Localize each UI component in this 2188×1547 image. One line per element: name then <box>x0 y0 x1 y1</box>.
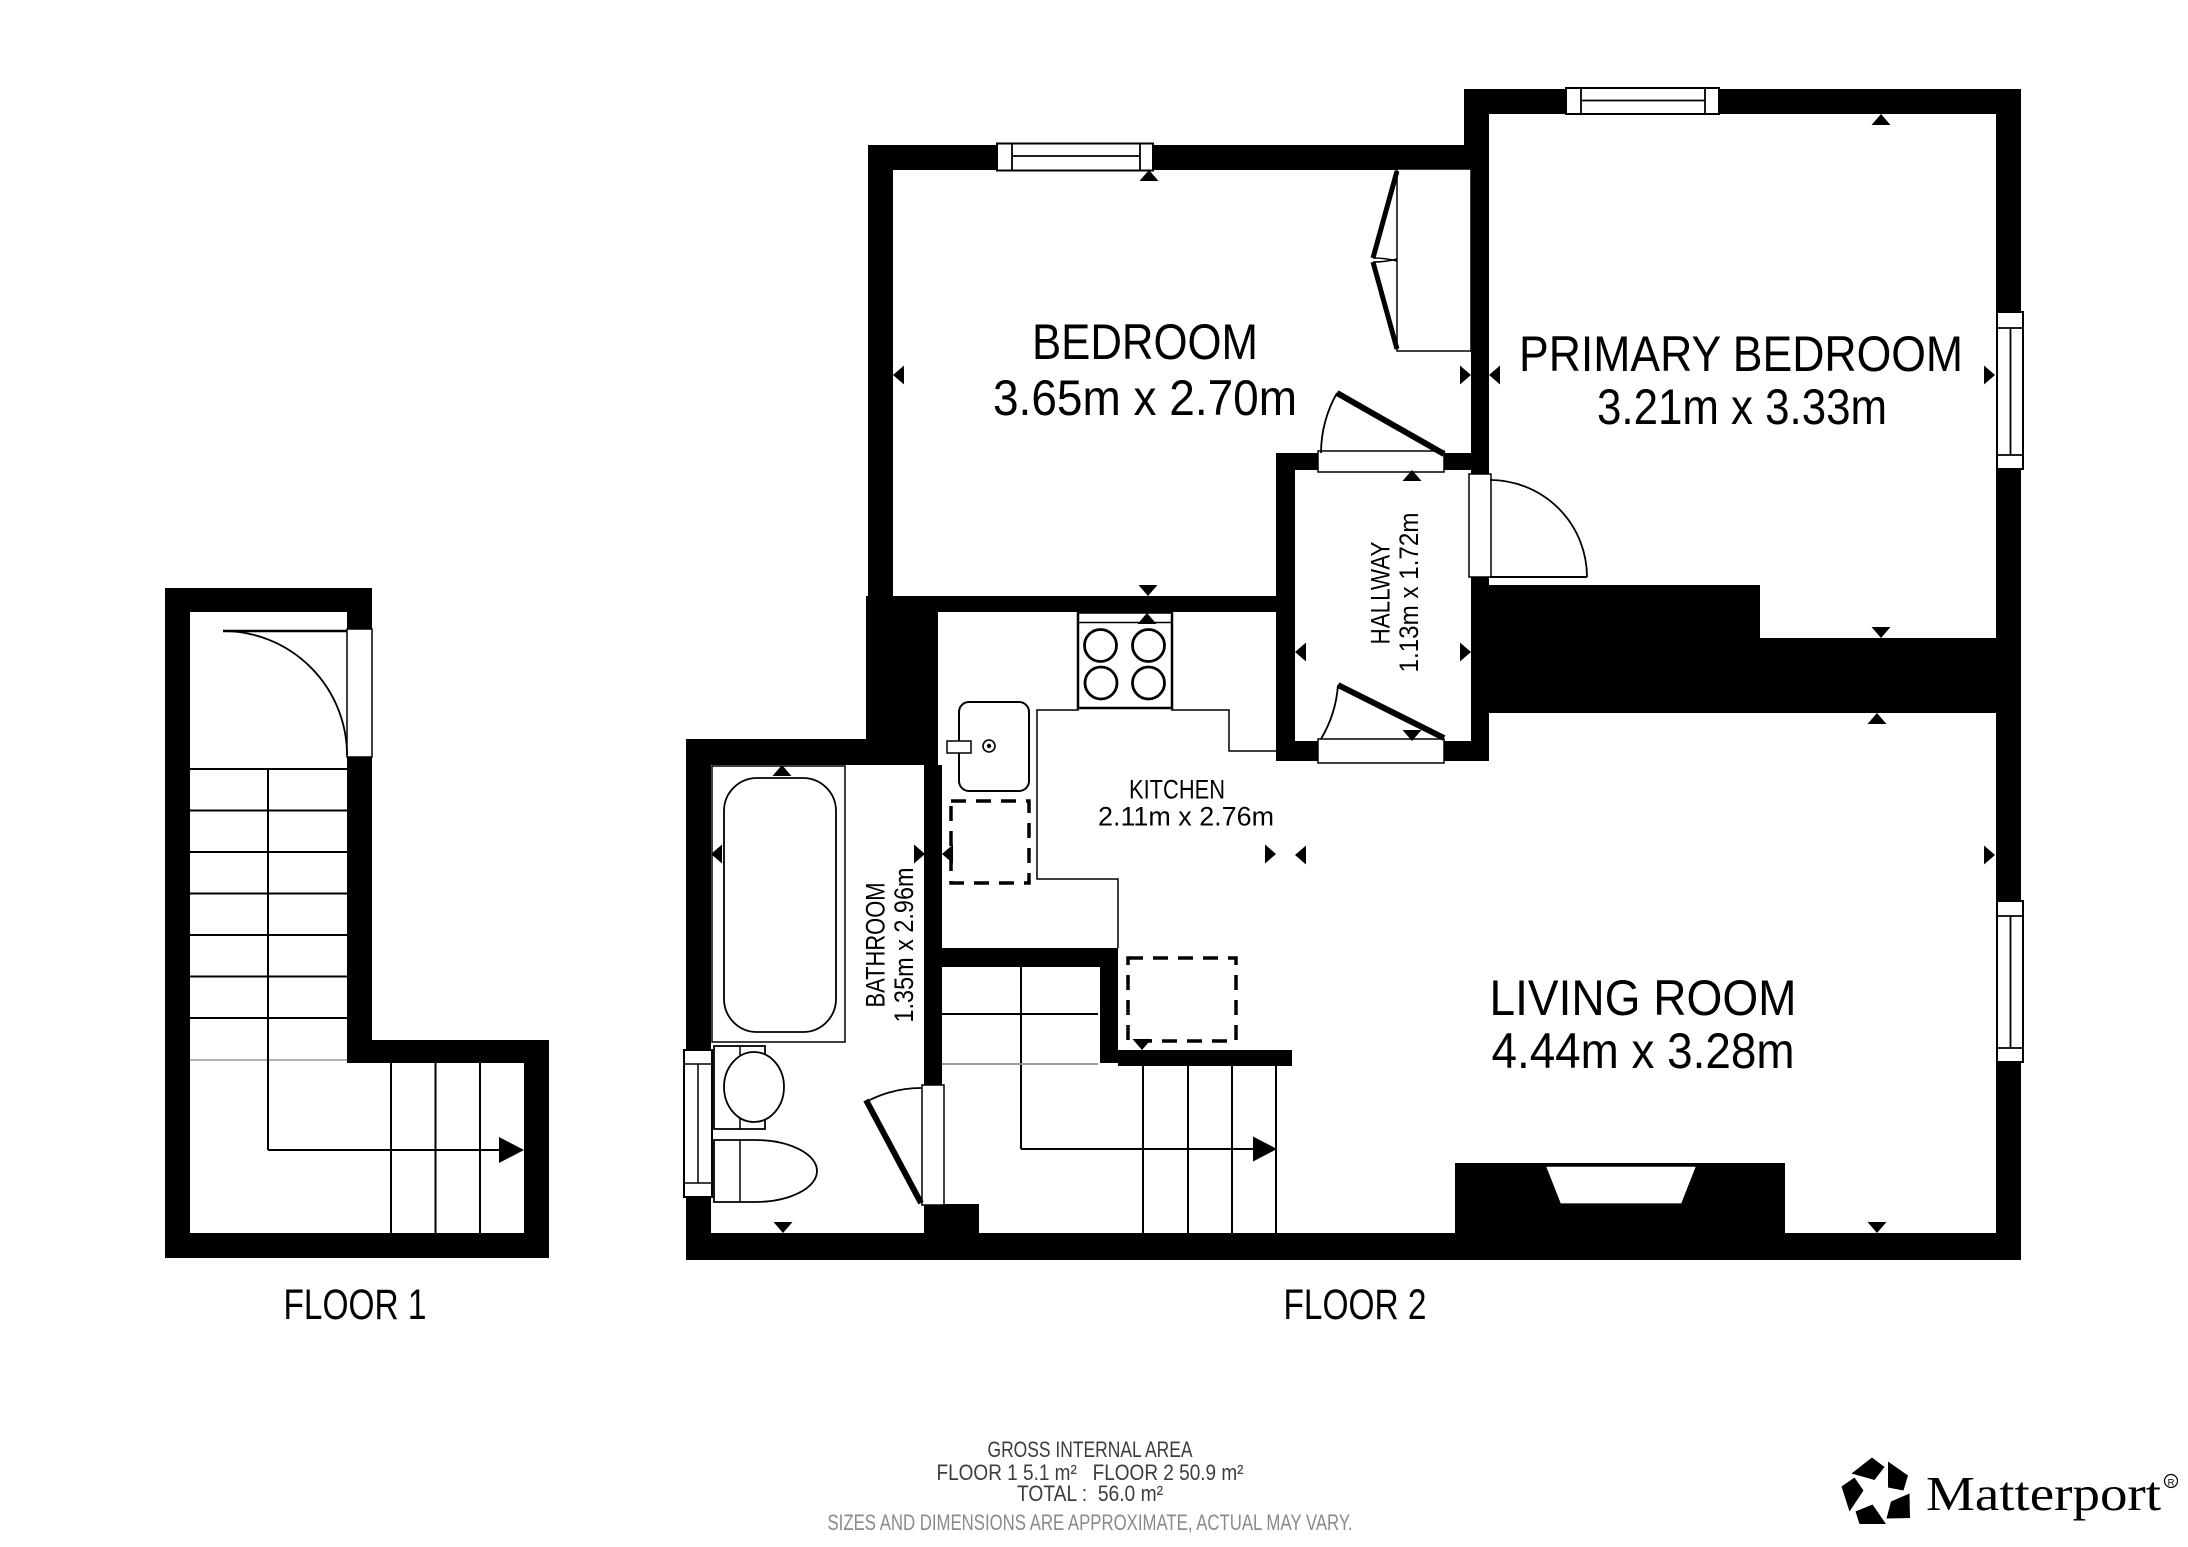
svg-text:TOTAL : 56.0 m²: TOTAL : 56.0 m² <box>1017 1481 1163 1506</box>
svg-text:KITCHEN: KITCHEN <box>1129 775 1225 805</box>
svg-text:Matterport: Matterport <box>1926 1466 2161 1521</box>
svg-text:GROSS INTERNAL AREA: GROSS INTERNAL AREA <box>988 1437 1193 1462</box>
svg-text:4.44m x 3.28m: 4.44m x 3.28m <box>1492 1023 1795 1079</box>
svg-text:SIZES AND DIMENSIONS ARE APPRO: SIZES AND DIMENSIONS ARE APPROXIMATE, AC… <box>828 1510 1353 1535</box>
svg-text:1.13m x 1.72m: 1.13m x 1.72m <box>1394 513 1424 673</box>
svg-text:BATHROOM: BATHROOM <box>861 883 891 1008</box>
svg-text:2.11m x 2.76m: 2.11m x 2.76m <box>1098 802 1274 832</box>
svg-text:BEDROOM: BEDROOM <box>1032 314 1258 370</box>
svg-text:1.35m x 2.96m: 1.35m x 2.96m <box>889 868 919 1023</box>
svg-text:FLOOR 2: FLOOR 2 <box>1284 1281 1427 1329</box>
svg-text:FLOOR 1: FLOOR 1 <box>284 1281 427 1329</box>
svg-text:LIVING ROOM: LIVING ROOM <box>1490 970 1797 1026</box>
svg-text:PRIMARY BEDROOM: PRIMARY BEDROOM <box>1519 326 1963 382</box>
svg-text:3.65m x 2.70m: 3.65m x 2.70m <box>993 370 1297 426</box>
svg-text:HALLWAY: HALLWAY <box>1366 542 1396 645</box>
svg-text:3.21m x 3.33m: 3.21m x 3.33m <box>1597 379 1887 435</box>
svg-text:R: R <box>2168 1478 2175 1489</box>
